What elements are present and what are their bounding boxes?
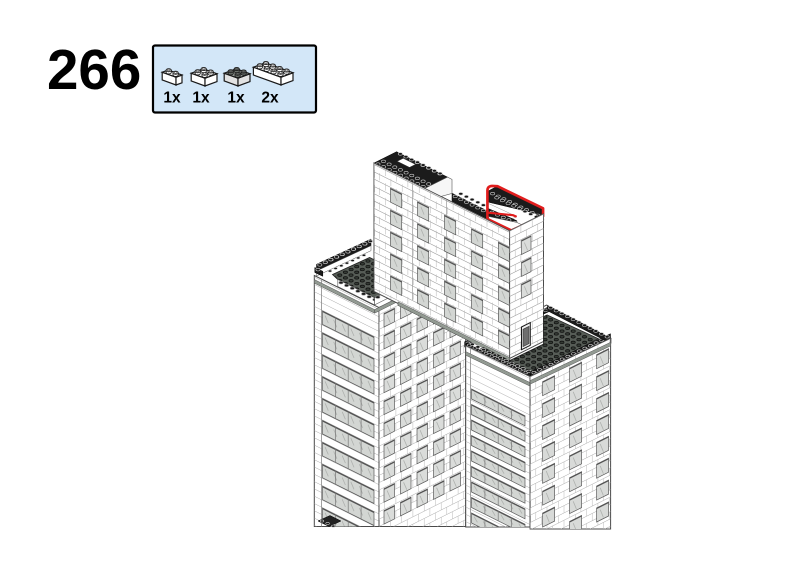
svg-text:1x: 1x <box>192 90 210 107</box>
svg-text:2x: 2x <box>261 90 279 107</box>
svg-text:1x: 1x <box>227 90 245 107</box>
svg-text:266: 266 <box>47 38 141 101</box>
svg-text:1x: 1x <box>163 90 181 107</box>
